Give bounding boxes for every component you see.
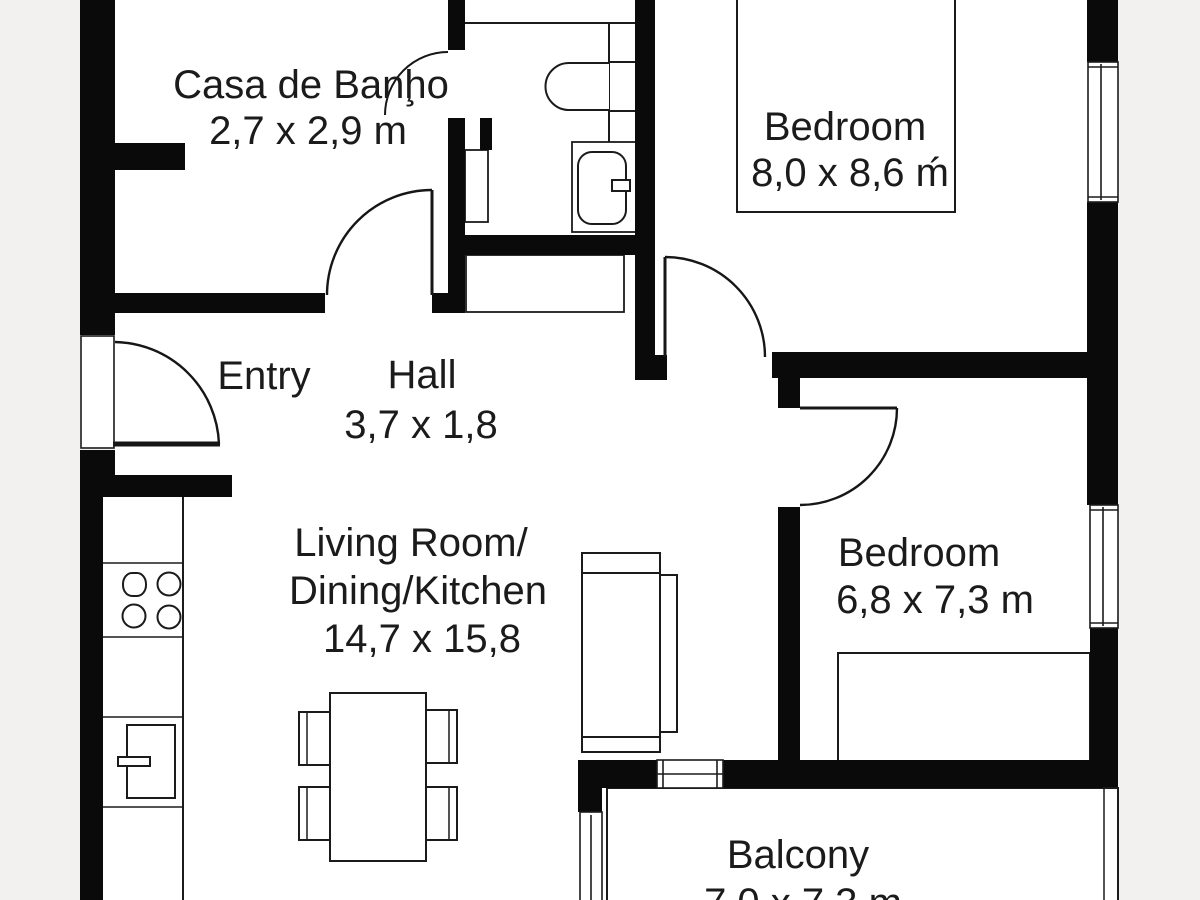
toilet-tank-icon [609, 62, 636, 111]
bed-icon-bedroom2 [838, 653, 1090, 765]
entry-door-frame [81, 336, 114, 448]
window-frame [1090, 505, 1118, 628]
window-bedroom2 [1090, 505, 1118, 628]
window-bedroom1 [1088, 62, 1118, 202]
wall-segment [772, 352, 1090, 378]
balcony-sliding-door [657, 760, 723, 788]
bedroom1-dims: 8,0 x 8,6 ḿ [751, 151, 949, 195]
wall-segment [578, 788, 602, 812]
bedroom2-label: Bedroom [838, 531, 1000, 575]
hall-closet [466, 255, 624, 312]
window-balcony-side [580, 812, 602, 900]
floor-plan-page: Casa de Banḩo 2,7 x 2,9 m Bedroom 8,0 x … [0, 0, 1200, 900]
living-room-label-2: Dining/Kitchen [289, 569, 547, 613]
wall-segment [480, 118, 492, 150]
wall-segment [1090, 628, 1118, 787]
wall-segment [103, 475, 232, 497]
bedroom2-dims: 6,8 x 7,3 m [836, 578, 1034, 622]
wall-segment [80, 293, 325, 313]
balcony-dims: 7,0 x 7,3 m [704, 881, 902, 900]
wall-segment [448, 0, 465, 50]
wall-segment [778, 507, 800, 760]
wall-segment [578, 760, 657, 788]
wall-segment [463, 235, 638, 255]
wc-cabinet-icon [465, 150, 488, 222]
chair-icon [426, 787, 457, 840]
hall-dims: 3,7 x 1,8 [344, 403, 497, 447]
wc-faucet-icon [612, 180, 630, 191]
sofa-seat [582, 553, 660, 752]
wall-segment [635, 0, 655, 360]
wall-segment [432, 293, 465, 313]
bathroom-label: Casa de Banḩo [173, 63, 449, 107]
wall-segment [778, 372, 800, 408]
balcony-label: Balcony [727, 833, 869, 877]
toilet-icon [546, 63, 610, 110]
bedroom1-label: Bedroom [764, 105, 926, 149]
chair-icon [299, 712, 330, 765]
wall-segment [1087, 0, 1118, 62]
wall-segment [115, 143, 185, 170]
wall-segment [635, 355, 667, 380]
sofa-backrest [660, 575, 677, 732]
bathroom-dims: 2,7 x 2,9 m [209, 109, 407, 153]
sofa-icon [582, 553, 677, 752]
chair-icon [299, 787, 330, 840]
entry-label: Entry [217, 354, 310, 398]
window-frame [1088, 62, 1118, 202]
wall-segment [80, 497, 103, 900]
kitchen-faucet-icon [118, 757, 150, 766]
dining-table [330, 693, 426, 861]
living-room-label-1: Living Room/ [294, 521, 528, 565]
wall-segment [448, 118, 465, 297]
hall-label: Hall [388, 353, 457, 397]
wall-segment [723, 760, 1103, 788]
chair-icon [426, 710, 457, 763]
wall-segment [1087, 202, 1118, 505]
living-room-dims: 14,7 x 15,8 [323, 617, 521, 661]
floor-plan: Casa de Banḩo 2,7 x 2,9 m Bedroom 8,0 x … [0, 0, 1200, 900]
wall-segment [80, 0, 115, 335]
